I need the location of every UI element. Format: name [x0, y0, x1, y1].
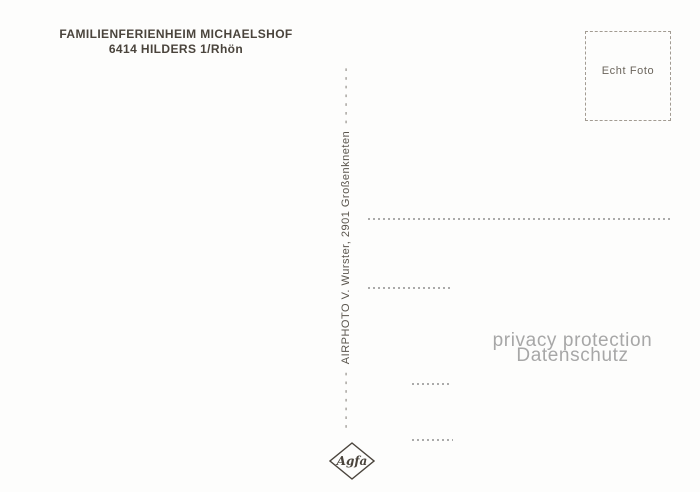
privacy-watermark: privacy protection Datenschutz: [460, 333, 685, 363]
publisher-divider: - - - - - - - AIRPHOTO V. Wurster, 2901 …: [338, 85, 354, 410]
sender-address: 6414 HILDERS 1/Rhön: [40, 42, 312, 56]
postcard-back: FAMILIENFERIENHEIM MICHAELSHOF 6414 HILD…: [0, 0, 700, 492]
address-line: [412, 383, 452, 385]
sender-header: FAMILIENFERIENHEIM MICHAELSHOF 6414 HILD…: [40, 27, 312, 56]
agfa-logo: Agfa: [329, 442, 375, 480]
address-line: [368, 218, 672, 220]
agfa-diamond-icon: Agfa: [329, 442, 375, 480]
publisher-dashes-right: - - - - - - -: [340, 67, 352, 124]
publisher-imprint: AIRPHOTO V. Wurster, 2901 Großenkneten: [340, 131, 352, 364]
address-line: [412, 439, 453, 441]
stamp-box: Echt Foto: [585, 31, 671, 121]
stamp-box-label: Echt Foto: [602, 65, 654, 77]
address-line: [368, 287, 451, 289]
sender-name: FAMILIENFERIENHEIM MICHAELSHOF: [40, 27, 312, 41]
agfa-logo-text: Agfa: [336, 454, 368, 468]
publisher-dashes-left: - - - - - - -: [340, 371, 352, 428]
